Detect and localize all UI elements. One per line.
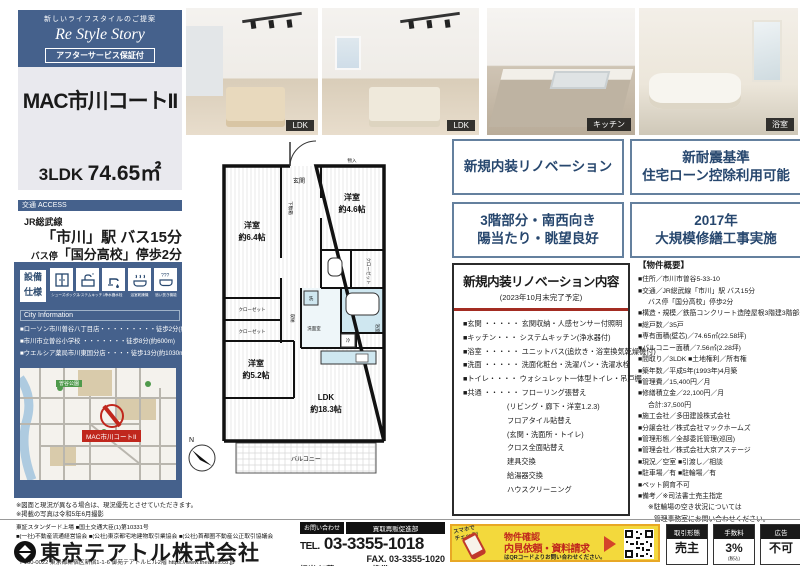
system-kitchen-icon: * xyxy=(76,268,99,291)
map-graphic xyxy=(20,368,176,480)
property-spec: 3LDK 74.65㎡ xyxy=(18,157,182,187)
disclaimer-notes: ※図面と現況が異なる場合は、現況優先とさせていただきます。 ※掲載の写真は令和5… xyxy=(16,501,206,520)
renovation-item: クロス全面貼替え xyxy=(463,441,628,455)
renovation-item: ■浴室 ・・・・・ ユニットバス(追炊き・浴室換気乾燥機付) xyxy=(463,345,628,359)
photo-ldk-1: LDK xyxy=(186,8,318,135)
renovation-item: ■トイレ・・・・ ウォシュレット一体型トイレ・吊戸棚 xyxy=(463,372,628,386)
renovation-item: (玄関・洗面所・トイレ) xyxy=(463,428,628,442)
sofa xyxy=(369,87,440,121)
dining-table xyxy=(226,87,285,121)
smartphone-icon xyxy=(461,532,486,561)
floor-plan: 玄関 物入 下駄箱 洋室 約6.4帖 洋室 約4.6帖 クローゼット クローゼッ… xyxy=(186,138,438,500)
renovation-list: ■玄関 ・・・・・ 玄関収納・人感センサー付照明 ■キッチン・・・ システムキッ… xyxy=(454,317,628,497)
renovation-item: フロアタイル貼替え xyxy=(463,414,628,428)
photo-kitchen: キッチン xyxy=(487,8,635,135)
contact-block: お問い合わせ 買取再販促進部 TEL. 03-3355-1018 FAX. 03… xyxy=(300,522,445,566)
overview-item: ■管理費／15,400円／月 xyxy=(638,377,798,388)
map-park-label: 曽谷公園 xyxy=(56,380,82,387)
after-service-badge: アフターサービス保証付 xyxy=(45,48,155,63)
renovation-item: (リビング・廊下・洋室1.2.3) xyxy=(463,400,628,414)
deal-type-badge: 取引形態 売主 xyxy=(666,524,708,565)
ceiling-light xyxy=(242,12,302,23)
overview-item: ■備考／※司法書士売主指定 xyxy=(638,491,798,502)
svg-text:約4.6帖: 約4.6帖 xyxy=(338,204,365,214)
shoebox-icon xyxy=(50,268,73,291)
plan-closet-label: クローゼット xyxy=(239,328,266,335)
feature-badge-earthquake: 新耐震基準住宅ローン控除利用可能 xyxy=(630,139,800,195)
renovation-item: 給湯器交換 xyxy=(463,469,628,483)
equipment-item: 浄水器水栓 xyxy=(102,268,125,298)
arrow-right-icon xyxy=(604,536,616,552)
overview-item: ■修繕積立金／22,100円／月 xyxy=(638,388,798,399)
photo-caption: キッチン xyxy=(587,118,631,131)
plan-wash-label: 洗 xyxy=(309,295,314,302)
feature-badge-repair: 2017年大規模修繕工事実施 xyxy=(630,202,800,258)
overview-item: ■管理形態／全部委託管理(巡回) xyxy=(638,434,798,445)
inquiry-promo-box[interactable]: スマホで チェック! 物件確認 内見依頼・資料請求 はQRコードよりお問い合わせ… xyxy=(450,524,660,562)
phone-number: TEL. 03-3355-1018 xyxy=(300,534,445,554)
overview-item: ■交通／JR総武線「市川」駅 バス15分 xyxy=(638,286,798,297)
photo-caption: 浴室 xyxy=(766,118,794,131)
plan-monoire-label: 物入 xyxy=(348,157,357,164)
equipment-label: 設備 仕様 xyxy=(20,270,46,302)
promo-note: はQRコードよりお問い合わせください。 xyxy=(504,553,606,561)
overview-item: ■バルコニー面積／7.56㎡(2.28坪) xyxy=(638,343,798,354)
bathtub xyxy=(649,73,741,109)
photo-bathroom: 浴室 xyxy=(639,8,798,135)
svg-text:N: N xyxy=(189,437,194,444)
contact-label: お問い合わせ xyxy=(300,522,344,534)
overview-item: ■築年数／平成5年(1993年)4月築 xyxy=(638,366,798,377)
overview-item: バス停「国分高校」停歩2分 xyxy=(638,297,798,308)
city-info-item: ■ローソン市川曽谷八丁目店・・・・・・・・・徒歩2分(約150m) xyxy=(20,324,176,336)
renovation-item: ■玄関 ・・・・・ 玄関収納・人感センサー付照明 xyxy=(463,317,628,331)
bathroom-mirror xyxy=(752,20,782,82)
plan-bath-label: 浴室 xyxy=(374,324,381,333)
equipment-item: * システムキッチン xyxy=(76,268,99,298)
equipment-item: ??? 追い焚き機能 xyxy=(154,268,177,298)
plan-balcony-label: バルコニー xyxy=(291,456,321,463)
overview-item: ■管理会社／株式会社大京アステージ xyxy=(638,445,798,456)
deal-badges: 取引形態 売主 手数料 3% (税込) 広告 不可 xyxy=(666,524,800,565)
svg-text:約18.3帖: 約18.3帖 xyxy=(310,404,342,414)
reheating-bath-icon: ??? xyxy=(154,268,177,291)
footer-divider xyxy=(0,519,800,520)
note-line: ※図面と現況が異なる場合は、現況優先とさせていただきます。 xyxy=(16,501,206,510)
renovation-item: ■共通 ・・・・・ フローリング張替え xyxy=(463,386,628,400)
feature-badges: 新規内装リノベーション 新耐震基準住宅ローン控除利用可能 3階部分・南西向き陽当… xyxy=(452,139,798,258)
renovation-title: 新規内装リノベーション内容 xyxy=(454,271,628,290)
svg-text:???: ??? xyxy=(161,273,170,279)
plan-room1-label: 洋室 xyxy=(244,220,260,230)
property-layout: 3LDK xyxy=(39,165,83,184)
property-title-box: MAC市川コートII 3LDK 74.65㎡ xyxy=(18,67,182,190)
equipment-item: 浴室乾燥機 xyxy=(128,268,151,298)
photo-caption: LDK xyxy=(286,120,314,131)
overview-item: ■住所／市川市曽谷5-33-10 xyxy=(638,274,798,285)
brand-logo: Re Style Story xyxy=(18,26,182,44)
overview-item: ■現況／空室 ■引渡し／相談 xyxy=(638,457,798,468)
city-info-item: ■市川市立曽谷小学校 ・・・・・・・徒歩8分(約600m) xyxy=(20,336,176,348)
map-marker-label: MAC市川コートII xyxy=(82,430,141,442)
overview-item: ■総戸数／35戸 xyxy=(638,320,798,331)
renovation-item: ■洗面 ・・・・・ 洗面化粧台・洗濯パン・洗濯水栓 xyxy=(463,358,628,372)
plan-ldk-label: LDK xyxy=(318,393,335,402)
kitchen-sink xyxy=(550,71,610,89)
divider xyxy=(454,308,628,311)
overview-item: ■分譲会社／株式会社マックホームズ xyxy=(638,423,798,434)
overview-item: ■構造・規模／鉄筋コンクリート造陸屋根3階建3階部分 xyxy=(638,308,798,319)
compass-icon: N xyxy=(189,437,215,471)
ceiling-light xyxy=(400,12,460,23)
plan-room2-label: 洋室 xyxy=(344,192,360,202)
flyer-page: 新しいライフスタイルのご提案 Re Style Story アフターサービス保証… xyxy=(0,0,800,566)
property-area: 74.65㎡ xyxy=(88,162,162,185)
plan-genkan-label: 玄関 xyxy=(293,177,305,185)
feature-badge-view: 3階部分・南西向き陽当たり・眺望良好 xyxy=(452,202,624,258)
svg-text:*: * xyxy=(92,273,94,279)
location-map: 曽谷公園 MAC市川コートII xyxy=(20,368,176,480)
access-bus: バス停「国分高校」停歩2分 xyxy=(10,244,182,263)
access-bus-stop: 「国分高校」停歩2分 xyxy=(58,247,182,262)
plan-senmen-label: 洗面室 xyxy=(307,325,321,332)
plan-getabako-label: 下駄箱 xyxy=(287,201,294,215)
info-panel: 設備 仕様 シューズボックス * システムキッチン 浄水器水栓 xyxy=(14,262,182,498)
overview-item: ■施工会社／多田建設株式会社 xyxy=(638,411,798,422)
overview-item: ■ペット飼育不可 xyxy=(638,480,798,491)
city-info-header: City Information xyxy=(20,310,180,321)
bath-dryer-icon xyxy=(128,268,151,291)
license-line: 東証スタンダード上場 ■国土交通大臣(1)第10331号 xyxy=(16,524,316,533)
overview-item: ■専有面積(壁芯)／74.65㎡(22.58坪) xyxy=(638,331,798,342)
photo-ldk-2: LDK xyxy=(322,8,479,135)
renovation-item: 建具交換 xyxy=(463,455,628,469)
overview-item: ※駐輪場の空き状況については xyxy=(638,502,798,513)
contact-department: 買取再販促進部 xyxy=(346,522,445,534)
overview-item: ■間取り／3LDK ■土地権利／所有権 xyxy=(638,354,798,365)
overview-item: 合計:37,500円 xyxy=(638,400,798,411)
company-url-link[interactable]: https://www.theatres.co.jp xyxy=(168,560,234,566)
equipment-item: シューズボックス xyxy=(50,268,73,298)
svg-text:約6.4帖: 約6.4帖 xyxy=(238,232,265,242)
access-header: 交通 ACCESS xyxy=(18,200,182,211)
equipment-icons: シューズボックス * システムキッチン 浄水器水栓 浴室乾燥機 xyxy=(50,268,177,298)
access-bus-prefix: バス停 xyxy=(31,251,58,261)
city-info-list: ■ローソン市川曽谷八丁目店・・・・・・・・・徒歩2分(約150m) ■市川市立曽… xyxy=(20,324,176,360)
plan-room3-label: 洋室 xyxy=(248,358,264,368)
city-info-item: ■ウエルシア薬局市川東国分店・・・・徒歩13分(約1030m) xyxy=(20,348,176,360)
deal-ad-badge: 広告 不可 xyxy=(760,524,800,565)
overview-heading: 【物件概要】 xyxy=(638,258,798,272)
renovation-item: ハウスクリーニング xyxy=(463,483,628,497)
renovation-box: 新規内装リノベーション内容 (2023年10月末完了予定) ■玄関 ・・・・・ … xyxy=(452,263,630,516)
svg-text:約5.2帖: 約5.2帖 xyxy=(242,370,269,380)
plan-fridge-label: 冷 xyxy=(346,337,351,344)
plan-closet-label: クローゼット xyxy=(239,306,266,313)
photo-caption: LDK xyxy=(447,120,475,131)
fax-number: FAX. 03-3355-1020 xyxy=(300,554,445,564)
water-purifier-icon xyxy=(102,268,125,291)
window xyxy=(335,36,361,70)
company-address: 〒160-0022 東京都新宿区新宿1-1-6 御苑テアトルビル2階 https… xyxy=(18,557,348,566)
deal-fee-badge: 手数料 3% (税込) xyxy=(713,524,755,565)
renovation-item: ■キッチン・・・ システムキッチン(浄水器付) xyxy=(463,331,628,345)
plan-storage-label: 収納 xyxy=(289,314,296,323)
brand-box: 新しいライフスタイルのご提案 Re Style Story アフターサービス保証… xyxy=(18,10,182,67)
renovation-subtitle: (2023年10月末完了予定) xyxy=(454,292,628,303)
overview-item: ■駐車場／有 ■駐輪場／有 xyxy=(638,468,798,479)
feature-badge-renovation: 新規内装リノベーション xyxy=(452,139,624,195)
plan-closet-right-label: クローゼット xyxy=(365,258,372,285)
property-overview: 【物件概要】 ■住所／市川市曽谷5-33-10 ■交通／JR総武線「市川」駅 バ… xyxy=(638,258,798,525)
brand-tagline: 新しいライフスタイルのご提案 xyxy=(18,10,182,24)
property-name: MAC市川コートII xyxy=(18,85,182,115)
qr-code xyxy=(624,529,654,559)
